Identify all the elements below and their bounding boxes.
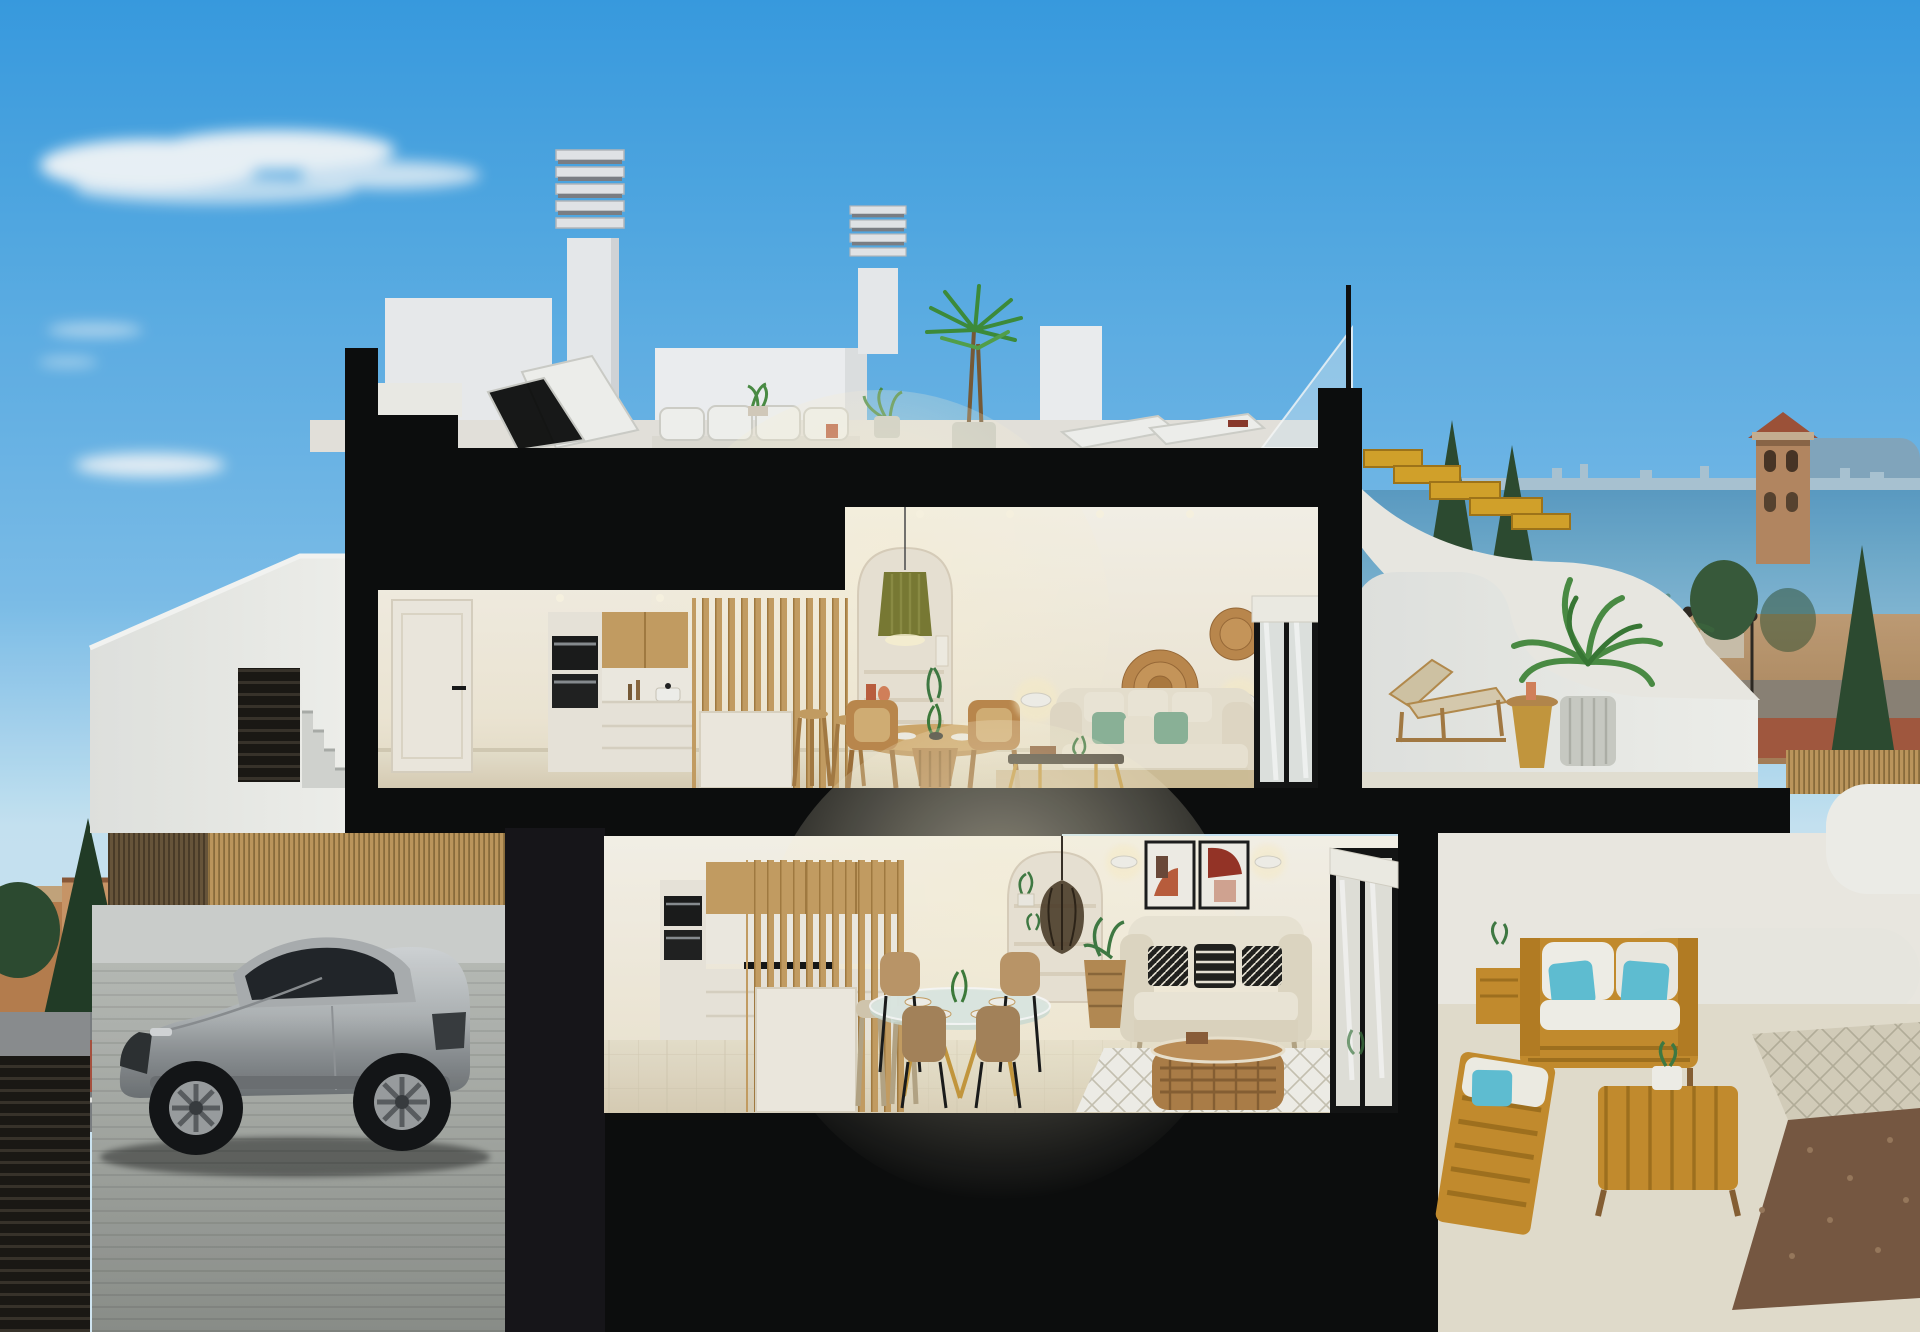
render-image [0, 0, 1920, 1332]
cross-section-scene [0, 0, 1920, 1332]
vignette [0, 0, 1920, 1332]
